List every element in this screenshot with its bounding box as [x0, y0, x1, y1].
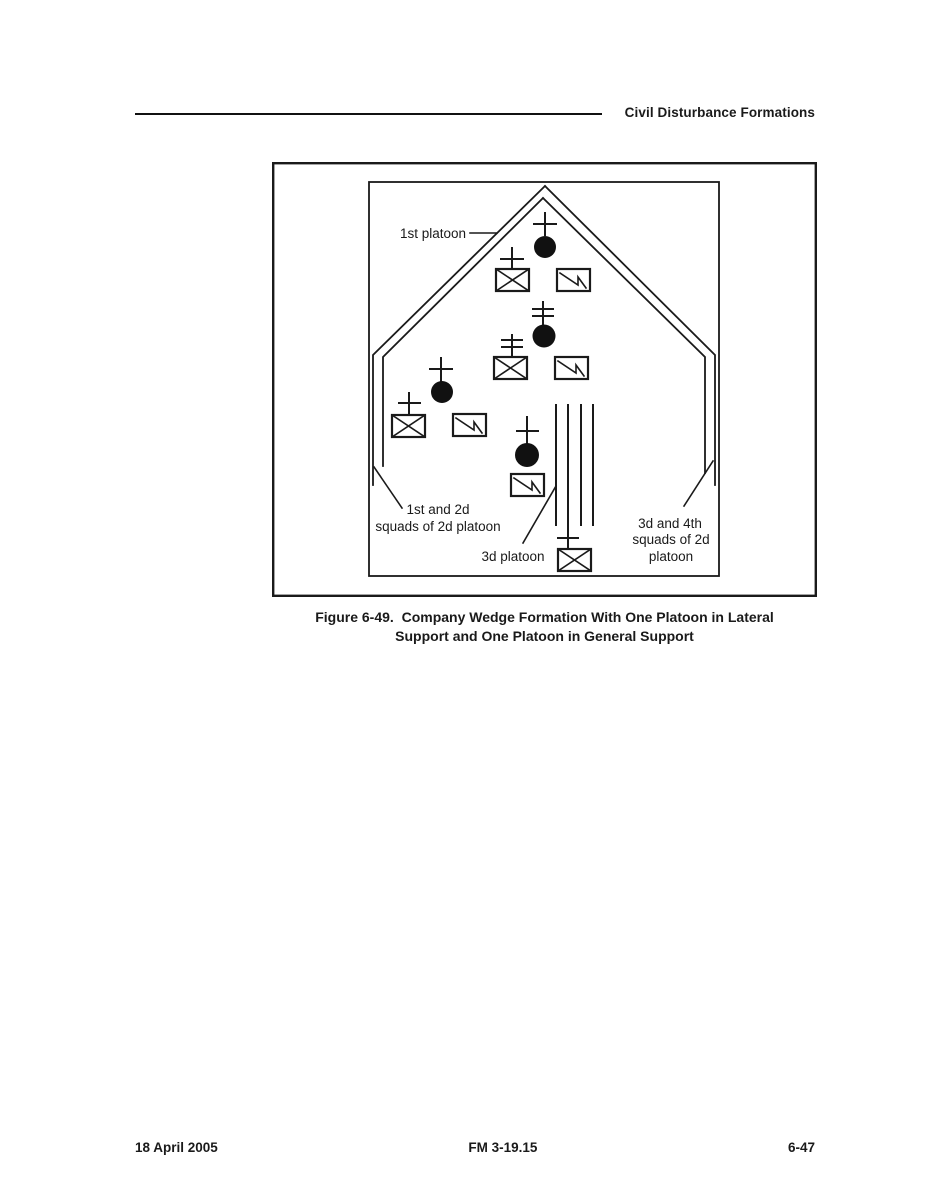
label-first-platoon: 1st platoon [400, 226, 466, 241]
platoon-leader-icon [534, 213, 556, 258]
wedge-outer-right-line [545, 186, 715, 485]
footer-page-number: 6-47 [788, 1140, 815, 1155]
squad-flag-icon [502, 335, 522, 357]
squad-box-icon [392, 415, 425, 437]
footer-manual-number: FM 3-19.15 [468, 1140, 537, 1155]
first-platoon-group [496, 213, 590, 291]
trail-squad-group [558, 527, 591, 571]
figure-6-49-diagram: 1st platoon 1st and 2d squads of 2d plat… [272, 162, 817, 597]
footer-date: 18 April 2005 [135, 1140, 218, 1155]
left-squads-leader-line [374, 467, 402, 508]
label-right-squads-line2: squads of 2d [632, 532, 709, 547]
label-left-squads-line2: squads of 2d platoon [375, 519, 500, 534]
squad-box-icon [496, 269, 529, 291]
lightning-box-icon [453, 414, 486, 436]
squad-box-icon [494, 357, 527, 379]
lightning-box-icon [511, 474, 544, 496]
lightning-box-icon [557, 269, 590, 291]
platoon-leader-icon [515, 417, 539, 467]
header-rule [135, 113, 602, 115]
label-right-squads-line1: 3d and 4th [638, 516, 702, 531]
platoon-leader-icon [430, 358, 453, 403]
page-header-title: Civil Disturbance Formations [625, 105, 815, 120]
page-footer: 18 April 2005 FM 3-19.15 6-47 [135, 1140, 815, 1155]
platoon-leader-icon [533, 302, 556, 348]
squad-box-icon [558, 549, 591, 571]
document-page: Civil Disturbance Formations [0, 0, 926, 1198]
label-left-squads-line1: 1st and 2d [406, 502, 469, 517]
label-third-platoon: 3d platoon [481, 549, 544, 564]
squad-flag-icon [501, 248, 523, 269]
figure-caption-line1: Figure 6-49. Company Wedge Formation Wit… [272, 608, 817, 627]
squad-flag-icon [399, 393, 420, 415]
bottom-center-group [511, 417, 544, 496]
column-lines [556, 405, 593, 525]
right-squads-leader-line [684, 461, 713, 506]
left-group [392, 358, 486, 437]
lightning-box-icon [555, 357, 588, 379]
figure-caption: Figure 6-49. Company Wedge Formation Wit… [272, 608, 817, 646]
squad-flag-icon [558, 527, 578, 549]
second-group [494, 302, 588, 379]
figure-caption-line2: Support and One Platoon in General Suppo… [272, 627, 817, 646]
third-platoon-leader-line [523, 486, 556, 543]
label-right-squads-line3: platoon [649, 549, 693, 564]
